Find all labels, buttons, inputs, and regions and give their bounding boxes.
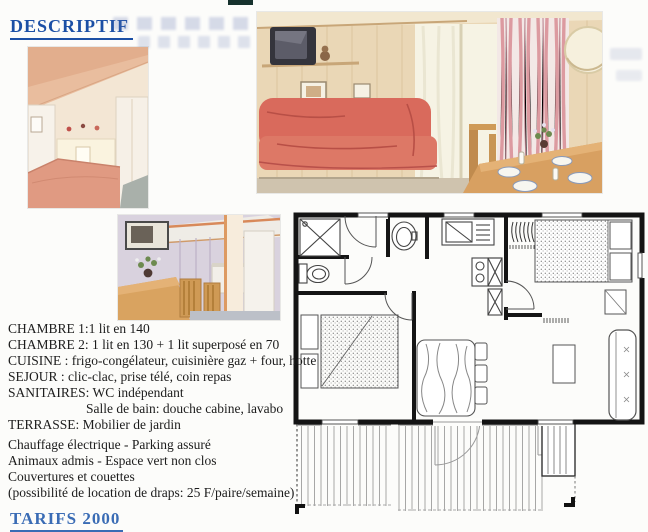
kitchen-sink: [442, 219, 494, 245]
spec-line-chambre1: CHAMBRE 1:1 lit en 140: [8, 321, 308, 337]
scanned-descriptif-page: { "document": { "title": "DESCRIPTIF", "…: [0, 0, 648, 520]
sofa: [259, 98, 437, 170]
toilet: [299, 264, 329, 283]
spec-line-sejour: SEJOUR : clic-clac, prise télé, coin rep…: [8, 369, 308, 385]
ghost-bleedthrough-text: [610, 48, 642, 60]
tv: [270, 27, 316, 65]
spec-line-terrasse: TERRASSE: Mobilier de jardin: [8, 417, 308, 433]
shower: [300, 219, 340, 256]
washbasin: [392, 222, 417, 250]
terrace-steps: [542, 423, 575, 502]
footer-section-title: TARIFS 2000: [10, 509, 123, 532]
amenities: Chauffage électrique - Parking assuré An…: [8, 437, 308, 501]
amenity-line-animaux: Animaux admis - Espace vert non clos: [8, 453, 308, 469]
kitchen-photo: [118, 215, 280, 320]
amenity-line-couvertures: Couvertures et couettes: [8, 469, 308, 485]
spec-line-cuisine: CUISINE : frigo-congélateur, cuisinière …: [8, 353, 308, 369]
amenity-line-chauffage: Chauffage électrique - Parking assuré: [8, 437, 308, 453]
scan-artifact-dash: [228, 0, 253, 5]
ghost-bleedthrough-text: [616, 70, 642, 81]
room-specs: CHAMBRE 1:1 lit en 140 CHAMBRE 2: 1 lit …: [8, 321, 308, 433]
bedroom-photo: [28, 47, 148, 208]
spec-line-salle-de-bain: Salle de bain: douche cabine, lavabo: [8, 401, 308, 417]
ghost-bleedthrough-text: [138, 36, 256, 48]
spec-line-sanitaires: SANITAIRES: WC indépendant: [8, 385, 308, 401]
bed-chambre1: [301, 315, 398, 388]
floor-plan: [292, 208, 648, 520]
coffee-table: [553, 345, 575, 383]
spec-line-chambre2: CHAMBRE 2: 1 lit en 130 + 1 lit superpos…: [8, 337, 308, 353]
terrace: [295, 420, 575, 514]
bed-chambre2: [535, 220, 632, 282]
radiator: [544, 318, 568, 323]
stove: [472, 258, 502, 286]
dining-table: [417, 340, 487, 416]
ghost-bleedthrough-text: [113, 17, 257, 30]
bunk-ladder: [510, 222, 534, 249]
amenity-line-draps: (possibilité de location de draps: 25 F/…: [8, 485, 308, 501]
living-room-photo: [257, 12, 602, 193]
sofa-clic-clac: [609, 330, 636, 420]
kitchen-unit: [488, 289, 502, 315]
